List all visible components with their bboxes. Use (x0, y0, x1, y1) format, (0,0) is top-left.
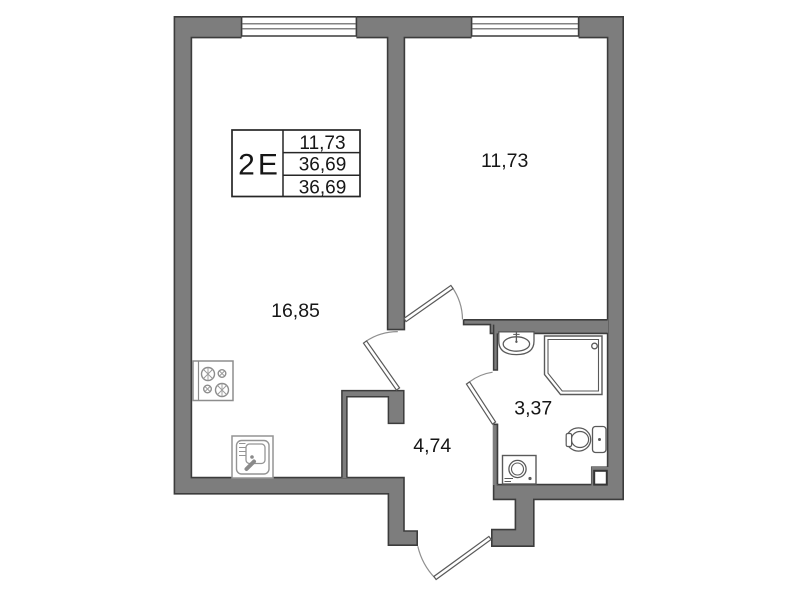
svg-text:3,37: 3,37 (514, 398, 552, 420)
svg-text:11,73: 11,73 (299, 133, 345, 154)
svg-text:4,74: 4,74 (413, 435, 451, 457)
svg-text:11,73: 11,73 (481, 150, 528, 172)
svg-text:2Е: 2Е (238, 148, 281, 181)
svg-text:16,85: 16,85 (271, 300, 320, 322)
svg-text:36,69: 36,69 (299, 155, 347, 176)
svg-text:36,69: 36,69 (299, 178, 347, 199)
